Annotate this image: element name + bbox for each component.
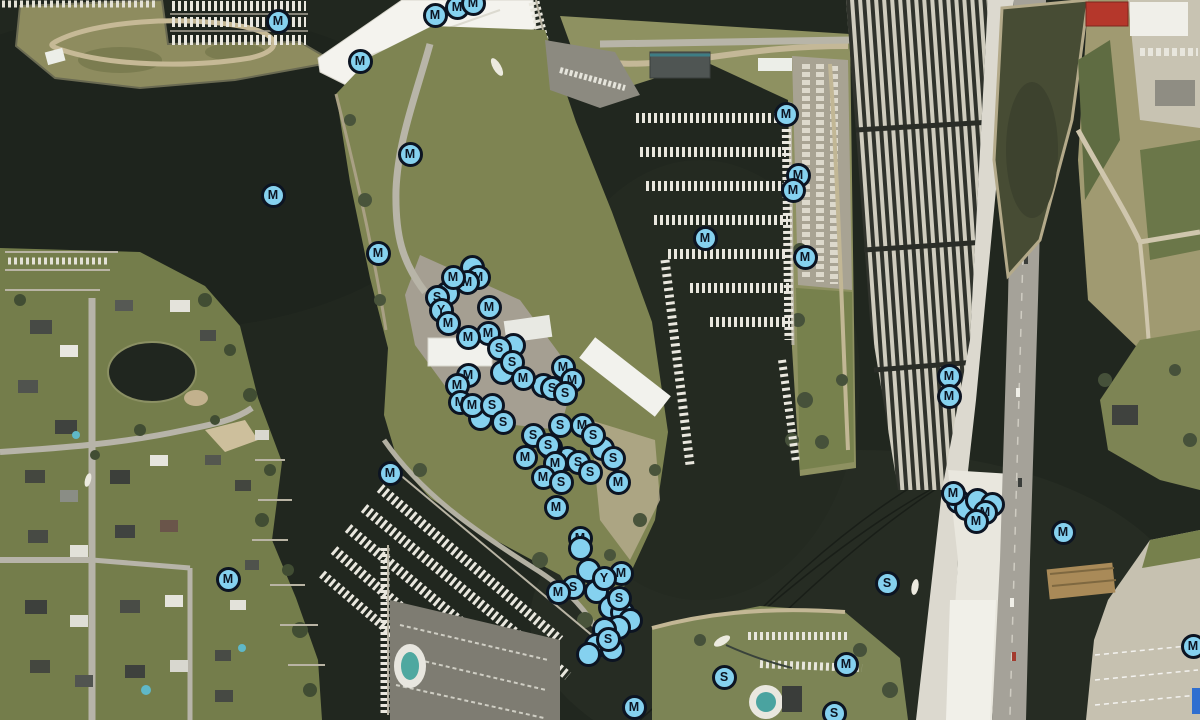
map-marker-m[interactable]: M [216,567,241,592]
markers-layer: MMMMMMMMMMMMMMMMMMMMMSSSMMMMMSYMMMMSSMMM… [0,0,1200,720]
map-marker-m[interactable]: M [378,461,403,486]
map-marker-s[interactable]: S [491,410,516,435]
map-marker-s[interactable]: S [822,701,847,720]
map-marker-m[interactable]: M [774,102,799,127]
map-marker-m[interactable]: M [546,580,571,605]
map-marker-s[interactable]: S [875,571,900,596]
map-marker-m[interactable]: M [793,245,818,270]
map-marker-s[interactable]: S [578,460,603,485]
map-marker-m[interactable]: M [622,695,647,720]
map-marker-s[interactable]: S [549,470,574,495]
map-marker-s[interactable]: S [596,627,621,652]
map-marker-m[interactable]: M [398,142,423,167]
map-marker-m[interactable]: M [366,241,391,266]
map-marker-m[interactable]: M [937,384,962,409]
map-marker-s[interactable]: S [601,446,626,471]
map-viewport[interactable]: MMMMMMMMMMMMMMMMMMMMMSSSMMMMMSYMMMMSSMMM… [0,0,1200,720]
map-marker-m[interactable]: M [266,9,291,34]
map-marker-m[interactable]: M [1051,520,1076,545]
map-marker-m[interactable]: M [606,470,631,495]
map-marker-m[interactable]: M [834,652,859,677]
map-marker-m[interactable]: M [477,295,502,320]
map-marker-m[interactable]: M [693,226,718,251]
map-marker-s[interactable]: S [607,586,632,611]
map-marker-m[interactable]: M [441,265,466,290]
map-marker-m[interactable]: M [781,178,806,203]
map-marker-m[interactable]: M [513,445,538,470]
map-marker-m[interactable]: M [1181,634,1200,659]
map-marker-s[interactable]: S [712,665,737,690]
map-marker-m[interactable]: M [456,325,481,350]
map-marker-hidden[interactable] [568,536,593,561]
map-marker-m[interactable]: M [544,495,569,520]
map-marker-m[interactable]: M [511,366,536,391]
map-marker-m[interactable]: M [423,3,448,28]
map-marker-s[interactable]: S [581,423,606,448]
map-marker-m[interactable]: M [941,481,966,506]
map-marker-s[interactable]: S [553,381,578,406]
map-marker-m[interactable]: M [348,49,373,74]
map-marker-m[interactable]: M [261,183,286,208]
map-marker-m[interactable]: M [964,509,989,534]
